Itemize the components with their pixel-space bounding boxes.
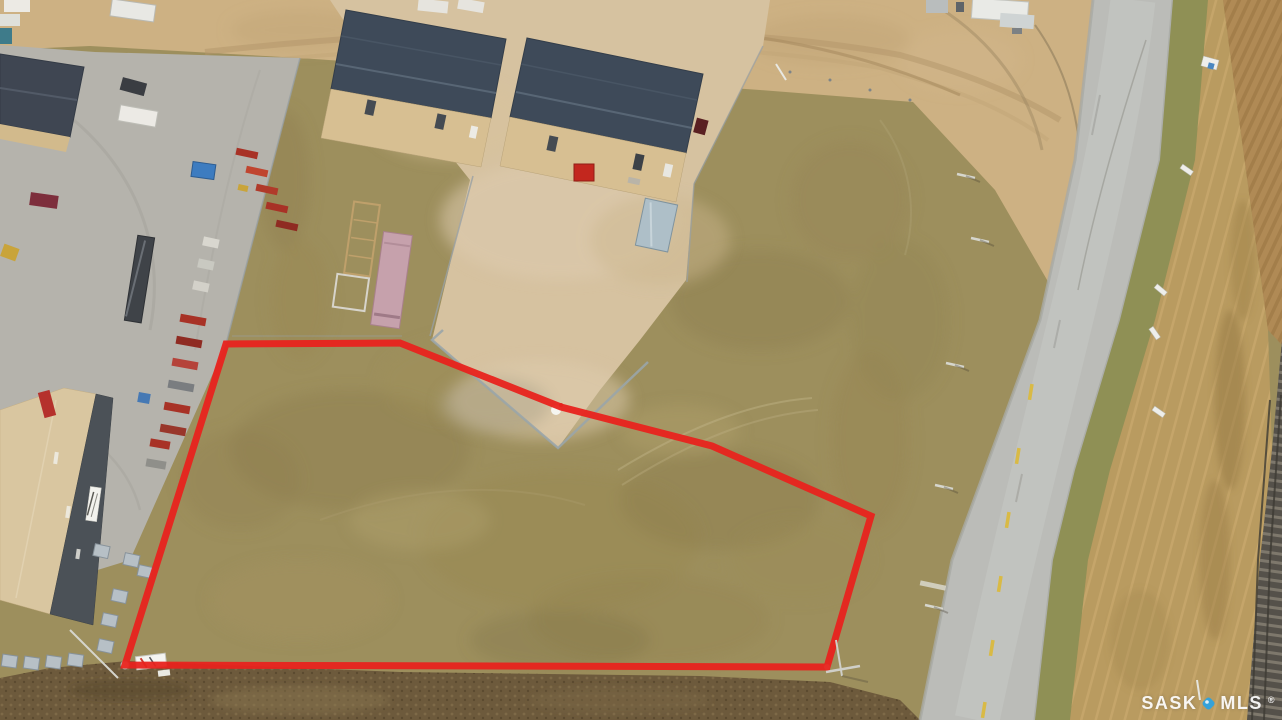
watermark-brand-right: MLS bbox=[1220, 693, 1263, 714]
aerial-photo: SASK MLS ® bbox=[0, 0, 1282, 720]
red-container bbox=[574, 164, 594, 181]
aerial-photo-canvas bbox=[0, 0, 1282, 720]
blue-canopy bbox=[191, 162, 216, 180]
mls-pin-icon bbox=[1201, 696, 1216, 711]
teal-equipment bbox=[0, 28, 12, 44]
blue-bin bbox=[137, 392, 151, 404]
watermark-brand-left: SASK bbox=[1141, 693, 1197, 714]
white-car-2 bbox=[0, 14, 20, 26]
white-car-1 bbox=[4, 0, 30, 12]
watermark-registered-mark: ® bbox=[1268, 693, 1276, 707]
mls-watermark: SASK MLS ® bbox=[1141, 693, 1276, 714]
